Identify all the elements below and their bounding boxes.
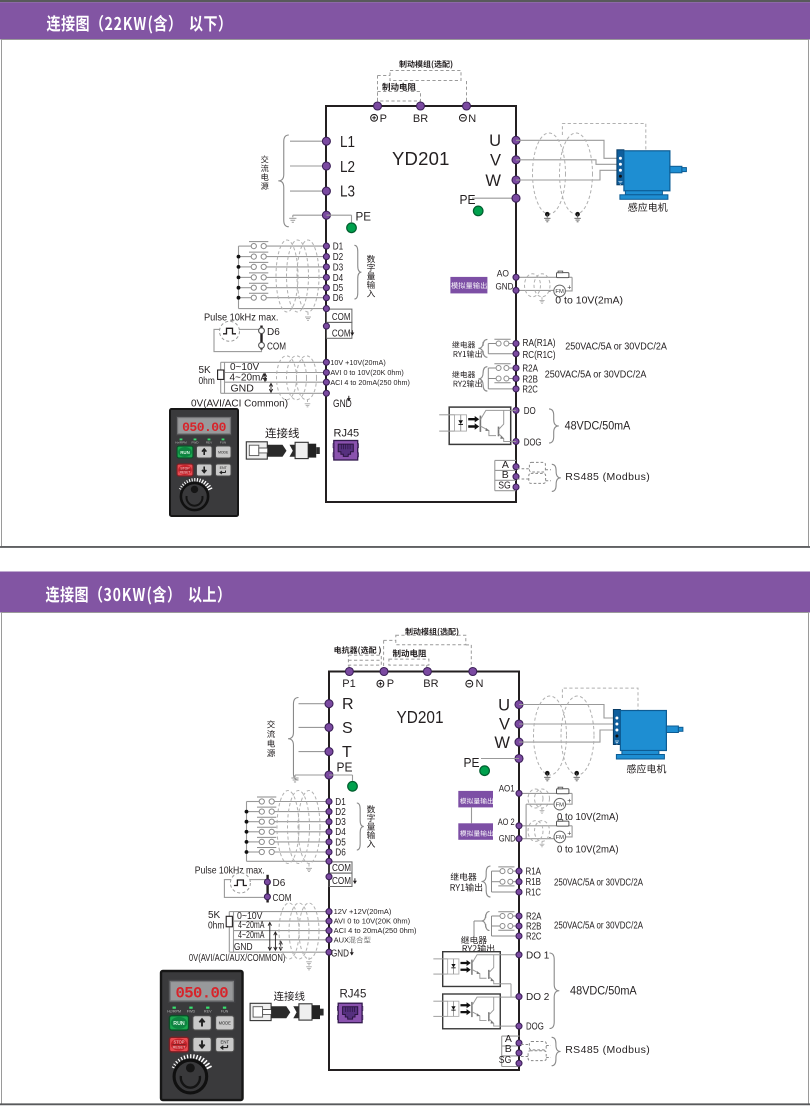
svg-text:S: S xyxy=(342,720,353,737)
svg-text:L3: L3 xyxy=(340,184,355,201)
svg-text:N: N xyxy=(468,113,476,125)
svg-text:R2A: R2A xyxy=(522,364,538,375)
svg-text:R2C: R2C xyxy=(522,385,538,396)
svg-text:DOG: DOG xyxy=(526,1022,544,1033)
svg-text:0 to 10V(2mA): 0 to 10V(2mA) xyxy=(557,844,619,856)
svg-text:+: + xyxy=(567,831,571,838)
svg-text:PE: PE xyxy=(460,193,476,207)
svg-text:RS485 (Modbus): RS485 (Modbus) xyxy=(565,471,650,483)
svg-text:PE: PE xyxy=(356,209,372,223)
svg-text:COM: COM xyxy=(332,327,351,339)
svg-text:D6: D6 xyxy=(273,878,286,889)
svg-text:250VAC/5A or 30VDC/2A: 250VAC/5A or 30VDC/2A xyxy=(554,877,643,888)
svg-text:GND: GND xyxy=(499,833,516,843)
svg-text:T: T xyxy=(342,744,352,761)
svg-text:Pulse 10kHz max.: Pulse 10kHz max. xyxy=(195,866,265,877)
svg-text:DO 2: DO 2 xyxy=(526,992,550,1003)
svg-text:YD201: YD201 xyxy=(397,707,444,727)
svg-text:ACI 4 to 20mA(250 0hm): ACI 4 to 20mA(250 0hm) xyxy=(330,378,410,387)
svg-text:10V +10V(20mA): 10V +10V(20mA) xyxy=(330,358,385,367)
svg-text:RC(R1C): RC(R1C) xyxy=(523,350,556,361)
svg-text:AVI 0 to 10V(20K 0hm): AVI 0 to 10V(20K 0hm) xyxy=(334,917,411,926)
svg-text:Pulse 10kHz max.: Pulse 10kHz max. xyxy=(204,312,278,323)
svg-text:D6: D6 xyxy=(335,847,346,858)
svg-text:D6: D6 xyxy=(267,327,280,338)
svg-text:+: + xyxy=(567,798,571,805)
svg-text:COM: COM xyxy=(332,876,351,887)
svg-text:DOG: DOG xyxy=(524,436,542,448)
svg-text:250VAC/5A or 30VDC/2A: 250VAC/5A or 30VDC/2A xyxy=(554,920,643,931)
svg-text:0 to 10V(2mA): 0 to 10V(2mA) xyxy=(555,294,623,306)
svg-text:FM: FM xyxy=(556,802,565,808)
svg-text:PE: PE xyxy=(464,756,480,770)
svg-text:U: U xyxy=(498,696,510,714)
svg-text:L2: L2 xyxy=(340,159,355,176)
svg-text:COM: COM xyxy=(273,893,292,904)
svg-text:+: + xyxy=(567,285,571,292)
svg-text:AO1: AO1 xyxy=(499,783,515,793)
svg-text:P: P xyxy=(387,678,394,690)
svg-text:ACI 4 to 20mA(250 0hm): ACI 4 to 20mA(250 0hm) xyxy=(334,926,417,935)
svg-text:W: W xyxy=(485,172,501,190)
svg-text:W: W xyxy=(494,734,510,752)
svg-text:P: P xyxy=(380,113,387,125)
svg-text:250VAC/5A or 30VDC/2A: 250VAC/5A or 30VDC/2A xyxy=(565,342,667,353)
svg-text:0V(AVI/ACI Common): 0V(AVI/ACI Common) xyxy=(191,398,288,409)
svg-text:R1C: R1C xyxy=(526,887,542,898)
svg-text:AUX: AUX xyxy=(334,935,349,944)
svg-text:R2C: R2C xyxy=(526,931,542,942)
svg-text:R1A: R1A xyxy=(526,867,542,878)
svg-text:RJ45: RJ45 xyxy=(340,989,367,1001)
svg-text:BR: BR xyxy=(423,678,438,690)
svg-text:5K: 5K xyxy=(199,365,212,376)
svg-text:D1: D1 xyxy=(333,242,344,253)
svg-text:DO: DO xyxy=(524,405,536,417)
svg-text:V: V xyxy=(490,152,501,170)
svg-text:COM: COM xyxy=(332,863,351,874)
svg-text:4~20mA: 4~20mA xyxy=(238,930,265,941)
svg-text:R: R xyxy=(342,696,354,713)
svg-text:R2B: R2B xyxy=(522,374,538,385)
svg-text:0V(AVI/ACI/AUX/COMMON): 0V(AVI/ACI/AUX/COMMON) xyxy=(189,953,286,964)
svg-text:D3: D3 xyxy=(333,262,344,273)
svg-text:48VDC/50mA: 48VDC/50mA xyxy=(565,418,631,432)
svg-text:0hm: 0hm xyxy=(208,921,224,932)
svg-text:L1: L1 xyxy=(340,134,355,151)
svg-text:AVI 0 to 10V(20K 0hm): AVI 0 to 10V(20K 0hm) xyxy=(330,368,403,377)
svg-text:V: V xyxy=(499,716,510,734)
svg-text:AO 2: AO 2 xyxy=(498,817,515,827)
svg-text:0hm: 0hm xyxy=(199,376,215,387)
svg-text:N: N xyxy=(476,678,484,690)
svg-text:PE: PE xyxy=(337,761,353,775)
svg-text:5K: 5K xyxy=(208,910,221,921)
svg-text:COM: COM xyxy=(267,341,286,352)
svg-text:RS485 (Modbus): RS485 (Modbus) xyxy=(565,1044,650,1056)
svg-text:12V +12V(20mA): 12V +12V(20mA) xyxy=(334,907,392,916)
svg-text:RJ45: RJ45 xyxy=(334,428,360,440)
svg-text:U: U xyxy=(489,132,501,150)
svg-text:GND: GND xyxy=(331,948,349,959)
svg-text:GND: GND xyxy=(234,941,253,953)
svg-text:D6: D6 xyxy=(333,293,344,304)
svg-text:AO: AO xyxy=(497,268,509,278)
svg-text:BR: BR xyxy=(413,113,428,125)
svg-text:48VDC/50mA: 48VDC/50mA xyxy=(570,983,637,997)
svg-text:GND: GND xyxy=(231,382,255,394)
svg-text:SG: SG xyxy=(498,480,511,492)
svg-text:FM: FM xyxy=(556,835,565,841)
svg-text:SG: SG xyxy=(499,1054,512,1066)
svg-text:GND: GND xyxy=(496,282,514,292)
svg-text:YD201: YD201 xyxy=(392,148,450,169)
svg-text:P1: P1 xyxy=(342,678,355,690)
svg-text:COM: COM xyxy=(332,311,351,323)
svg-text:DO 1: DO 1 xyxy=(526,950,550,961)
svg-text:250VAC/5A or 30VDC/2A: 250VAC/5A or 30VDC/2A xyxy=(545,370,647,381)
svg-text:RA(R1A): RA(R1A) xyxy=(523,338,556,349)
